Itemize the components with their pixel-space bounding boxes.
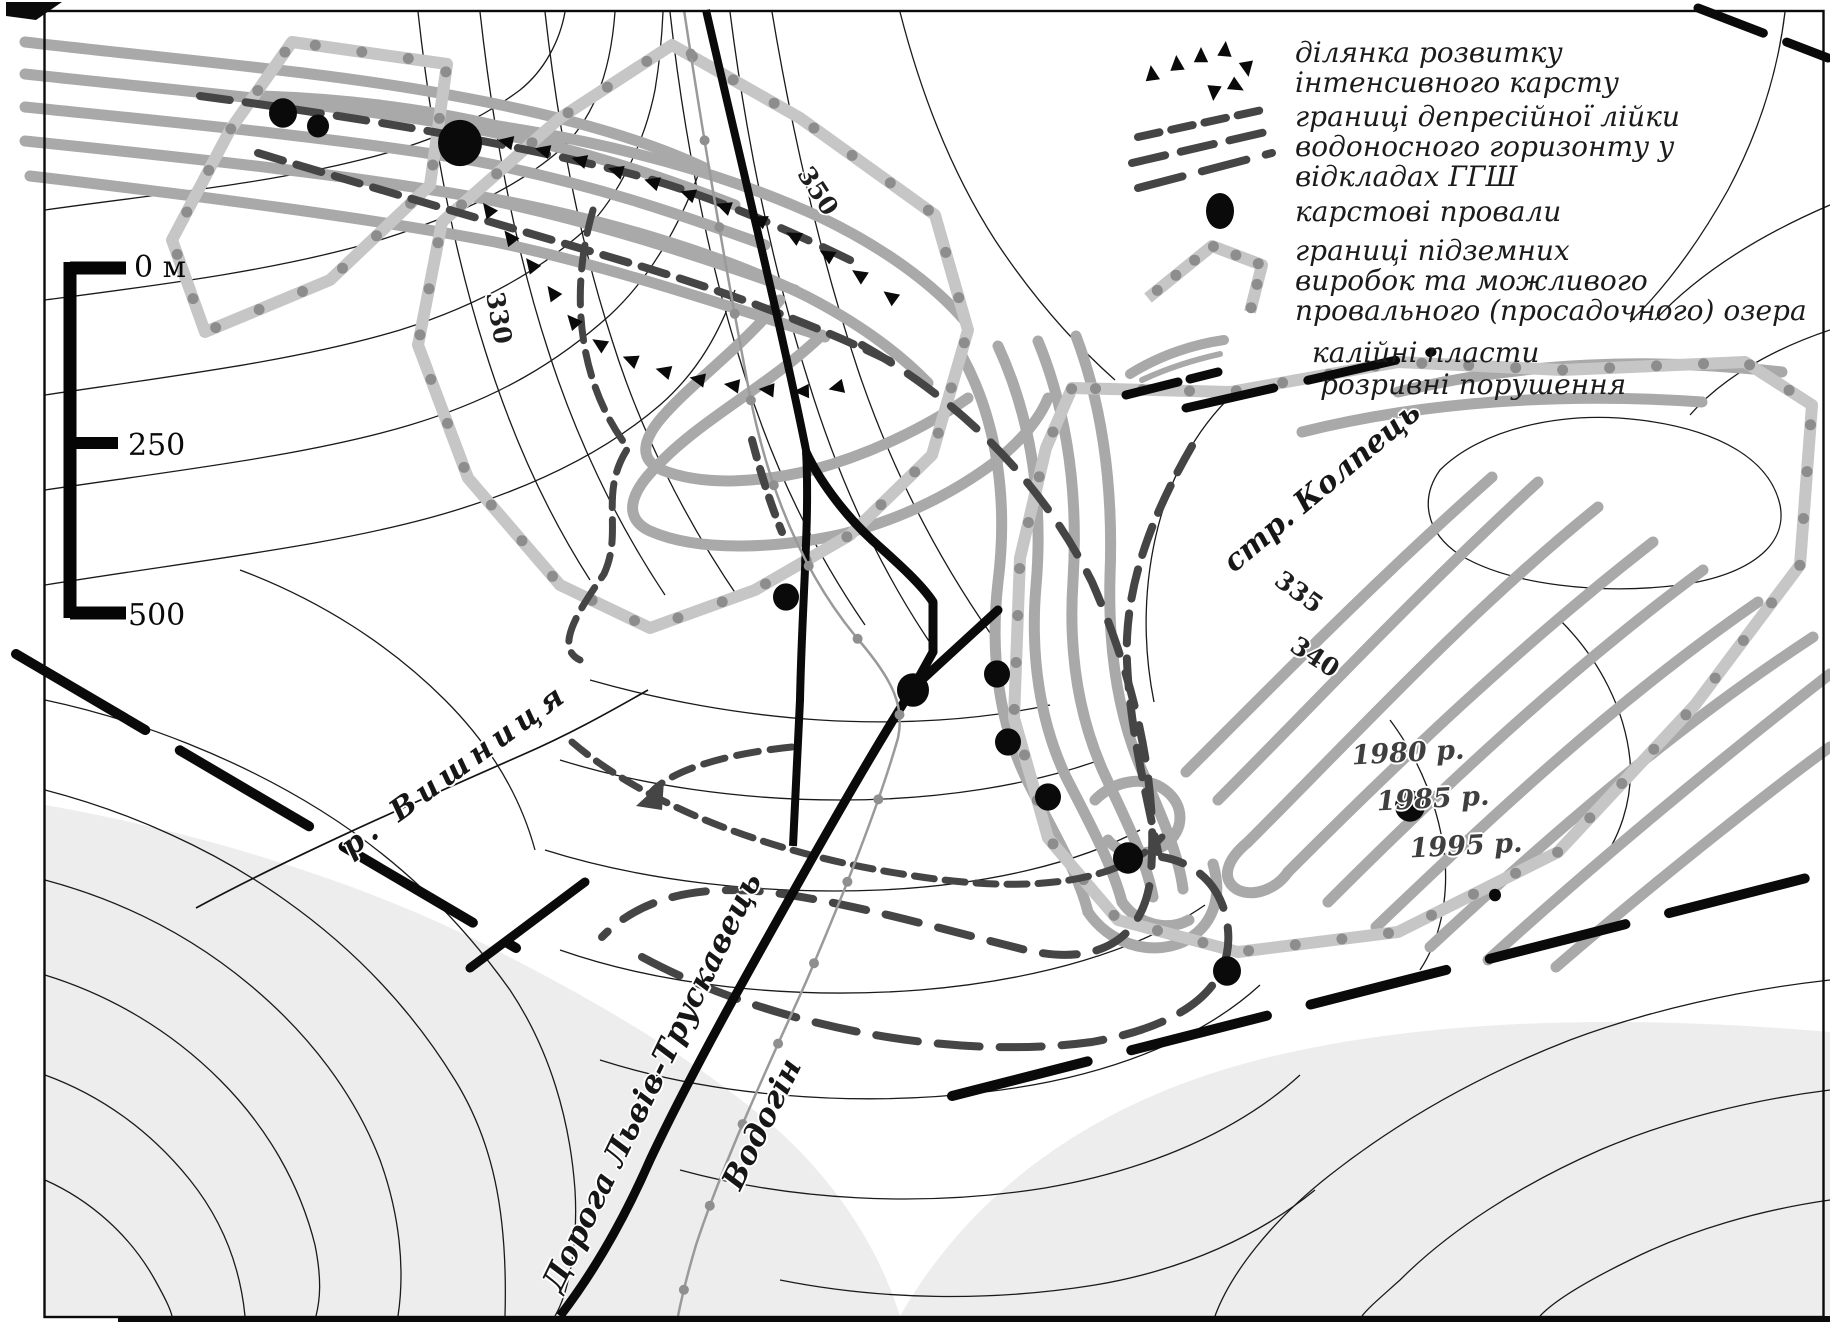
karst-triangle-icon: [827, 379, 845, 397]
sinkhole-dot: [1035, 783, 1061, 810]
sinkhole-dot: [269, 98, 297, 127]
boundary-dot: [547, 571, 558, 582]
karst-triangle-icon: [588, 333, 609, 353]
sinkhole-dot: [773, 583, 799, 610]
boundary-dot: [1798, 513, 1809, 524]
boundary-dot: [714, 222, 724, 232]
legend-dashed-lines-symbol: [1132, 110, 1272, 188]
boundary-dot: [433, 237, 444, 248]
boundary-dot: [873, 794, 883, 804]
depression-arrowhead: [636, 780, 664, 810]
boundary-dot: [1710, 673, 1721, 684]
boundary-dot: [425, 374, 436, 385]
boundary-dot: [1243, 945, 1254, 956]
boundary-dot: [769, 98, 780, 109]
scale-bar: [70, 262, 126, 618]
boundary-dot: [337, 263, 348, 274]
boundary-dot: [1383, 928, 1394, 939]
boundary-dot: [1290, 939, 1301, 950]
boundary-dot: [1552, 847, 1563, 858]
scale-label-500: 500: [128, 598, 185, 633]
legend-karst-triangle-icon: [1169, 54, 1185, 70]
boundary-dot: [1090, 383, 1101, 394]
scale-label-0: 0 м: [134, 250, 186, 285]
boundary-dot: [1584, 812, 1595, 823]
boundary-dot: [1648, 744, 1659, 755]
legend-karst-triangle-icon: [1239, 61, 1256, 79]
boundary-dot: [923, 205, 934, 216]
sinkhole-dot: [897, 673, 929, 707]
boundary-dot: [717, 596, 728, 607]
boundary-dot: [1277, 377, 1288, 388]
legend-item-depression-line2: водоносного горизонту у: [1295, 132, 1674, 162]
boundary-dot: [885, 177, 896, 188]
boundary-dot: [1189, 255, 1200, 266]
boundary-dot: [809, 958, 819, 968]
boundary-dot: [641, 56, 652, 67]
legend-item-sinkholes: карстові провали: [1295, 197, 1561, 227]
boundary-dot: [415, 329, 426, 340]
legend-item-faults: розривні порушення: [1320, 370, 1626, 400]
scale-label-250: 250: [128, 428, 185, 463]
boundary-dot: [953, 292, 964, 303]
boundary-dot: [842, 877, 852, 887]
boundary-dot: [1152, 285, 1163, 296]
boundary-dot: [486, 500, 497, 511]
sinkhole-dot: [438, 120, 482, 166]
boundary-dot: [1197, 937, 1208, 948]
legend-item-karst-area-line1: ділянка розвитку: [1295, 38, 1563, 68]
year-label-1985: 1985 р.: [1376, 781, 1490, 818]
boundary-dot: [1744, 359, 1755, 370]
boundary-dot: [297, 286, 308, 297]
boundary-dot: [1794, 560, 1805, 571]
boundary-dot: [225, 123, 236, 134]
boundary-dot: [700, 135, 710, 145]
boundary-dot: [1023, 517, 1034, 528]
boundary-dot: [853, 634, 863, 644]
boundary-dot: [310, 40, 321, 51]
boundary-dot: [804, 561, 814, 571]
boundary-dot: [1698, 358, 1709, 369]
legend-item-karst-area-line2: інтенсивного карсту: [1295, 68, 1619, 98]
boundary-dot: [686, 49, 696, 59]
boundary-dot: [1252, 279, 1263, 290]
karst-triangle-icon: [620, 350, 640, 369]
boundary-dot: [516, 535, 527, 546]
boundary-dot: [1208, 241, 1219, 252]
legend-dotted-symbol: [1148, 246, 1262, 312]
boundary-dot: [1034, 471, 1045, 482]
sinkhole-dot: [995, 728, 1021, 755]
boundary-dot: [841, 531, 852, 542]
sinkhole-dot: [1113, 842, 1143, 874]
boundary-dot: [1253, 258, 1264, 269]
legend-item-depression-line1: границі депресійної лійки: [1295, 102, 1680, 132]
boundary-dot: [563, 107, 574, 118]
legend-sinkhole-symbol: [1206, 193, 1234, 229]
karst-triangle-icon: [723, 377, 740, 394]
karst-triangle-icon: [848, 264, 869, 284]
boundary-dot: [1170, 270, 1181, 281]
boundary-dot: [1246, 302, 1257, 313]
legend-item-potash: калійні пласти: [1312, 338, 1539, 368]
boundary-dot: [459, 462, 470, 473]
boundary-dot: [940, 247, 951, 258]
legend-item-workings-line2: виробок та можливого: [1295, 266, 1648, 296]
sinkhole-dot: [1213, 956, 1241, 985]
boundary-dot: [254, 304, 265, 315]
boundary-dot: [760, 578, 771, 589]
boundary-dot: [673, 612, 684, 623]
boundary-dot: [371, 230, 382, 241]
boundary-dot: [773, 1039, 783, 1049]
boundary-dot: [1230, 250, 1241, 261]
legend-karst-triangle-icon: [1206, 85, 1222, 101]
boundary-dot: [1426, 910, 1437, 921]
boundary-dot: [602, 82, 613, 93]
boundary-dot: [876, 499, 887, 510]
legend-karst-triangle-icon: [1217, 40, 1233, 56]
boundary-dot: [959, 337, 970, 348]
boundary-dot: [909, 466, 920, 477]
boundary-dot: [933, 428, 944, 439]
boundary-dot: [181, 207, 192, 218]
boundary-dot: [188, 293, 199, 304]
karst-triangle-icon: [542, 282, 563, 303]
boundary-dot: [491, 168, 502, 179]
boundary-dot: [808, 123, 819, 134]
karst-triangle-icon: [654, 362, 673, 380]
boundary-dot: [440, 66, 451, 77]
boundary-dot: [434, 113, 445, 124]
boundary-dot: [252, 85, 263, 96]
boundary-dot: [679, 1285, 689, 1295]
sinkhole-dot: [1489, 889, 1501, 902]
boundary-dot: [403, 53, 414, 64]
boundary-dot: [1066, 383, 1077, 394]
boundary-dot: [946, 382, 957, 393]
boundary-dot: [1784, 385, 1795, 396]
boundary-dot: [1738, 635, 1749, 646]
karst-triangle-icon: [879, 286, 900, 307]
boundary-dot: [1011, 657, 1022, 668]
boundary-dot: [203, 165, 214, 176]
boundary-dot: [1651, 360, 1662, 371]
boundary-dot: [1766, 597, 1777, 608]
boundary-dot: [1680, 709, 1691, 720]
legend-karst-triangle-icon: [1194, 47, 1208, 62]
boundary-dot: [705, 1201, 715, 1211]
boundary-dot: [1012, 610, 1023, 621]
legend-item-depression-line3: відкладах ГГШ: [1295, 162, 1517, 192]
boundary-dot: [746, 395, 756, 405]
boundary-dot: [1014, 563, 1025, 574]
terrain-shading: [45, 805, 1830, 1316]
legend-karst-triangles-symbol: [1144, 40, 1256, 101]
boundary-dot: [279, 47, 290, 58]
boundary-dot: [1019, 750, 1030, 761]
legend-item-workings-line3: провального (просадочного) озера: [1295, 296, 1807, 326]
boundary-dot: [1009, 704, 1020, 715]
boundary-dot: [895, 710, 905, 720]
year-label-1980: 1980 р.: [1351, 735, 1465, 772]
boundary-dot: [1510, 868, 1521, 879]
boundary-dot: [1802, 466, 1813, 477]
sinkhole-dot: [984, 660, 1010, 687]
potash-bands: [25, 42, 1830, 967]
boundary-dot: [1109, 910, 1120, 921]
boundary-dot: [424, 283, 435, 294]
year-label-1995: 1995 р.: [1409, 828, 1523, 865]
legend-karst-triangle-icon: [1227, 77, 1247, 97]
boundary-dot: [1184, 386, 1195, 397]
boundary-dot: [356, 46, 367, 57]
boundary-dot: [1047, 427, 1058, 438]
karst-map: ділянка розвитку інтенсивного карсту гра…: [0, 0, 1830, 1324]
boundary-dot: [210, 322, 221, 333]
boundary-dot: [730, 309, 740, 319]
boundary-dot: [1616, 778, 1627, 789]
boundary-dot: [1152, 925, 1163, 936]
boundary-dot: [1048, 838, 1059, 849]
boundary-dot: [1468, 889, 1479, 900]
boundary-dot: [629, 615, 640, 626]
boundary-dot: [1805, 419, 1816, 430]
legend-karst-triangle-icon: [1144, 64, 1160, 81]
boundary-dot: [847, 150, 858, 161]
boundary-dot: [769, 480, 779, 490]
boundary-dot: [1336, 934, 1347, 945]
boundary-dot: [728, 74, 739, 85]
legend-item-workings-line1: границі підземних: [1295, 236, 1570, 266]
boundary-dot: [442, 418, 453, 429]
sinkhole-dot: [307, 114, 329, 137]
boundary-dot: [427, 160, 438, 171]
